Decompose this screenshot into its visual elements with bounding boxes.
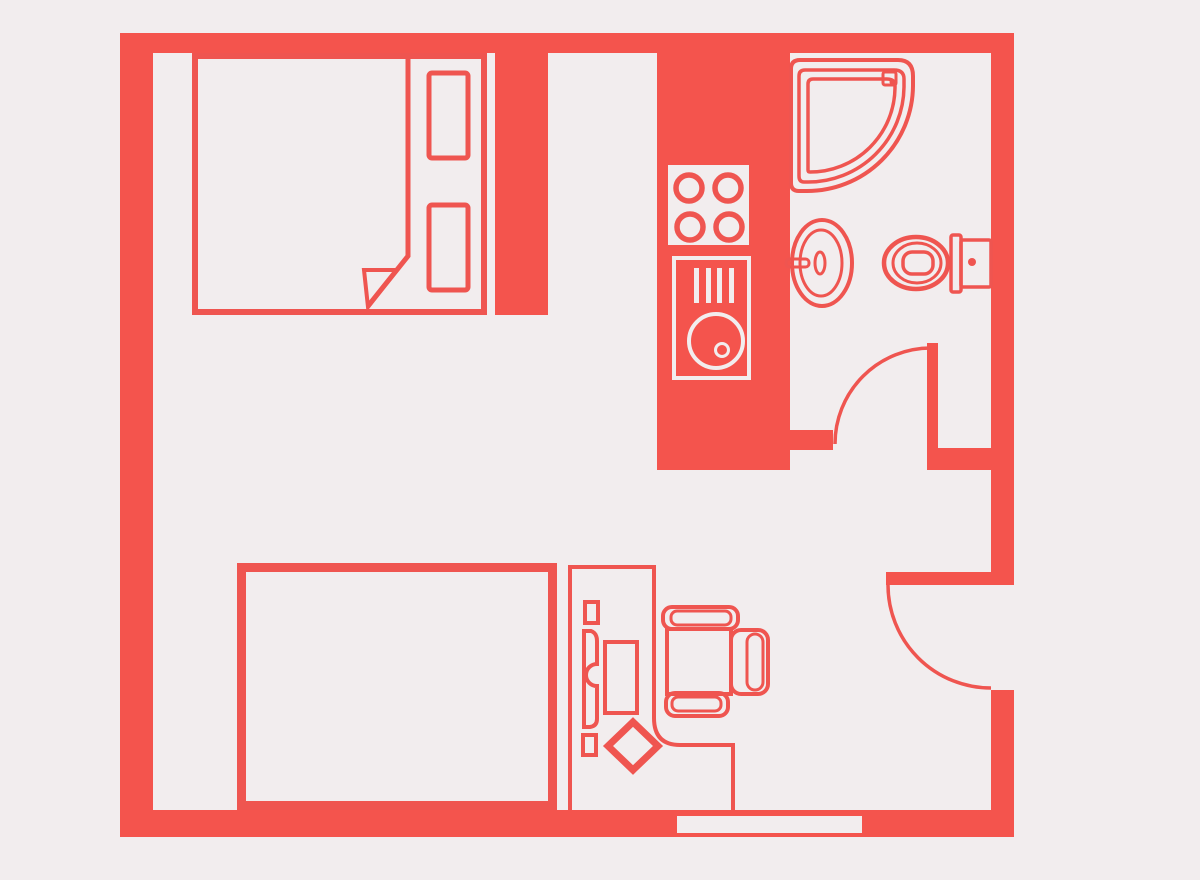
floor-corridor-mid [790,450,927,470]
entry-door-opening [991,585,1014,690]
shower-drain-dot [890,80,895,85]
floor-sleeping-nook [153,53,495,315]
washer-bar-2 [706,268,711,303]
bathroom-door-leaf [927,343,938,450]
washer-bar-1 [694,268,699,303]
floor-plan [0,0,1200,880]
stove [668,165,749,245]
washer-bar-3 [717,268,722,303]
washer-bar-4 [729,268,734,303]
floor-plan-canvas [0,0,1200,880]
toilet-flush-button [968,258,976,266]
entry-door-leaf [886,572,1014,585]
window [677,816,862,833]
floor-bathroom-pocket [938,430,991,448]
